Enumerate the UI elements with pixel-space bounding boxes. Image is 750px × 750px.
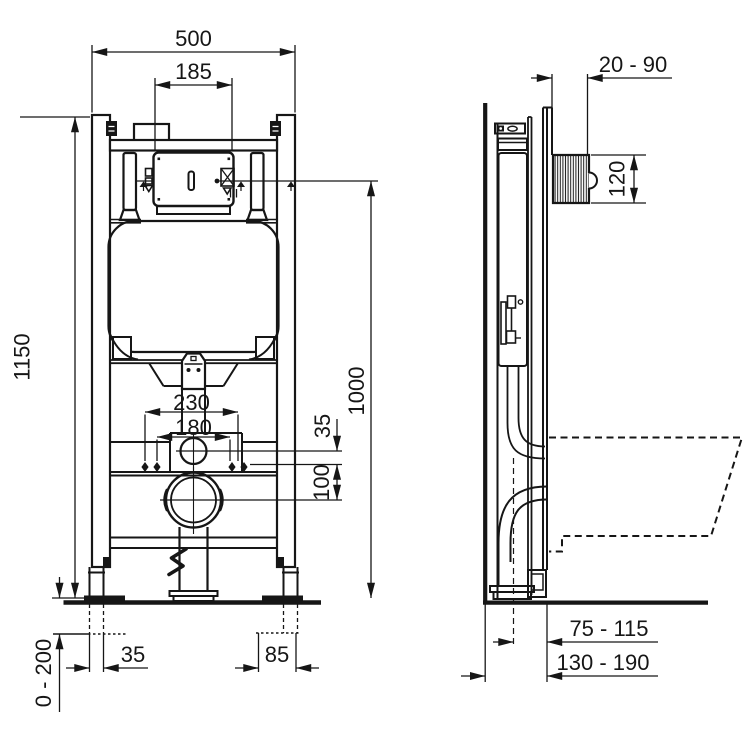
dim-frame-depth-label: 130 - 190 — [557, 650, 650, 675]
flush-pipe-side — [508, 366, 546, 459]
dim-fixing-outer-label: 230 — [173, 390, 210, 415]
top-clip-right — [270, 121, 281, 136]
dim-overall-width-label: 500 — [175, 26, 212, 51]
dim-foot-slot-label: 35 — [121, 642, 145, 667]
cistern-left-fitting — [145, 169, 153, 192]
dim-plate-recess-label: 120 — [605, 161, 630, 198]
dim-total-height-label: 1150 — [10, 333, 35, 380]
top-crossbar — [110, 140, 277, 151]
dim-inlet-offset-label: 35 — [310, 414, 335, 438]
dim-fixing-inner-label: 180 — [175, 415, 212, 440]
wall-bracket — [495, 124, 525, 134]
dim-outlet-offset-label: 100 — [309, 464, 334, 501]
toilet-bowl-outline — [549, 438, 742, 552]
dim-cistern-width-label: 185 — [175, 59, 212, 84]
support-strut-right — [248, 153, 268, 220]
front-view — [64, 115, 379, 603]
dim-actuation-height-label: 1000 — [344, 367, 369, 416]
side-rail-profile — [528, 117, 532, 595]
flush-plate-recess-block — [553, 155, 597, 203]
foot-right — [262, 557, 303, 602]
technical-drawing-page: 500 185 1150 1000 230 180 35 100 35 85 0… — [0, 0, 750, 750]
lower-crossbar — [110, 538, 277, 549]
frame-front-profile — [543, 108, 552, 571]
support-strut-left — [120, 153, 140, 220]
right-rail — [277, 115, 295, 567]
left-rail — [92, 115, 110, 567]
cistern-side — [498, 139, 527, 367]
fill-valve-parts — [501, 296, 523, 344]
wc-frame-technical-drawing: 500 185 1150 1000 230 180 35 100 35 85 0… — [0, 0, 750, 750]
top-bracket — [134, 124, 169, 141]
dim-foot-span-label: 85 — [265, 642, 289, 667]
waste-outlet-pipe — [164, 467, 223, 601]
dim-outlet-depth-label: 75 - 115 — [569, 616, 648, 641]
dim-wall-offset-label: 20 - 90 — [599, 52, 668, 77]
drain-elbow — [490, 487, 547, 600]
dim-floor-adjust-label: 0 - 200 — [31, 639, 56, 708]
top-clip-left — [106, 121, 117, 136]
protection-box — [109, 221, 279, 352]
foot-left — [84, 557, 125, 602]
actuation-center-dot — [215, 179, 220, 184]
